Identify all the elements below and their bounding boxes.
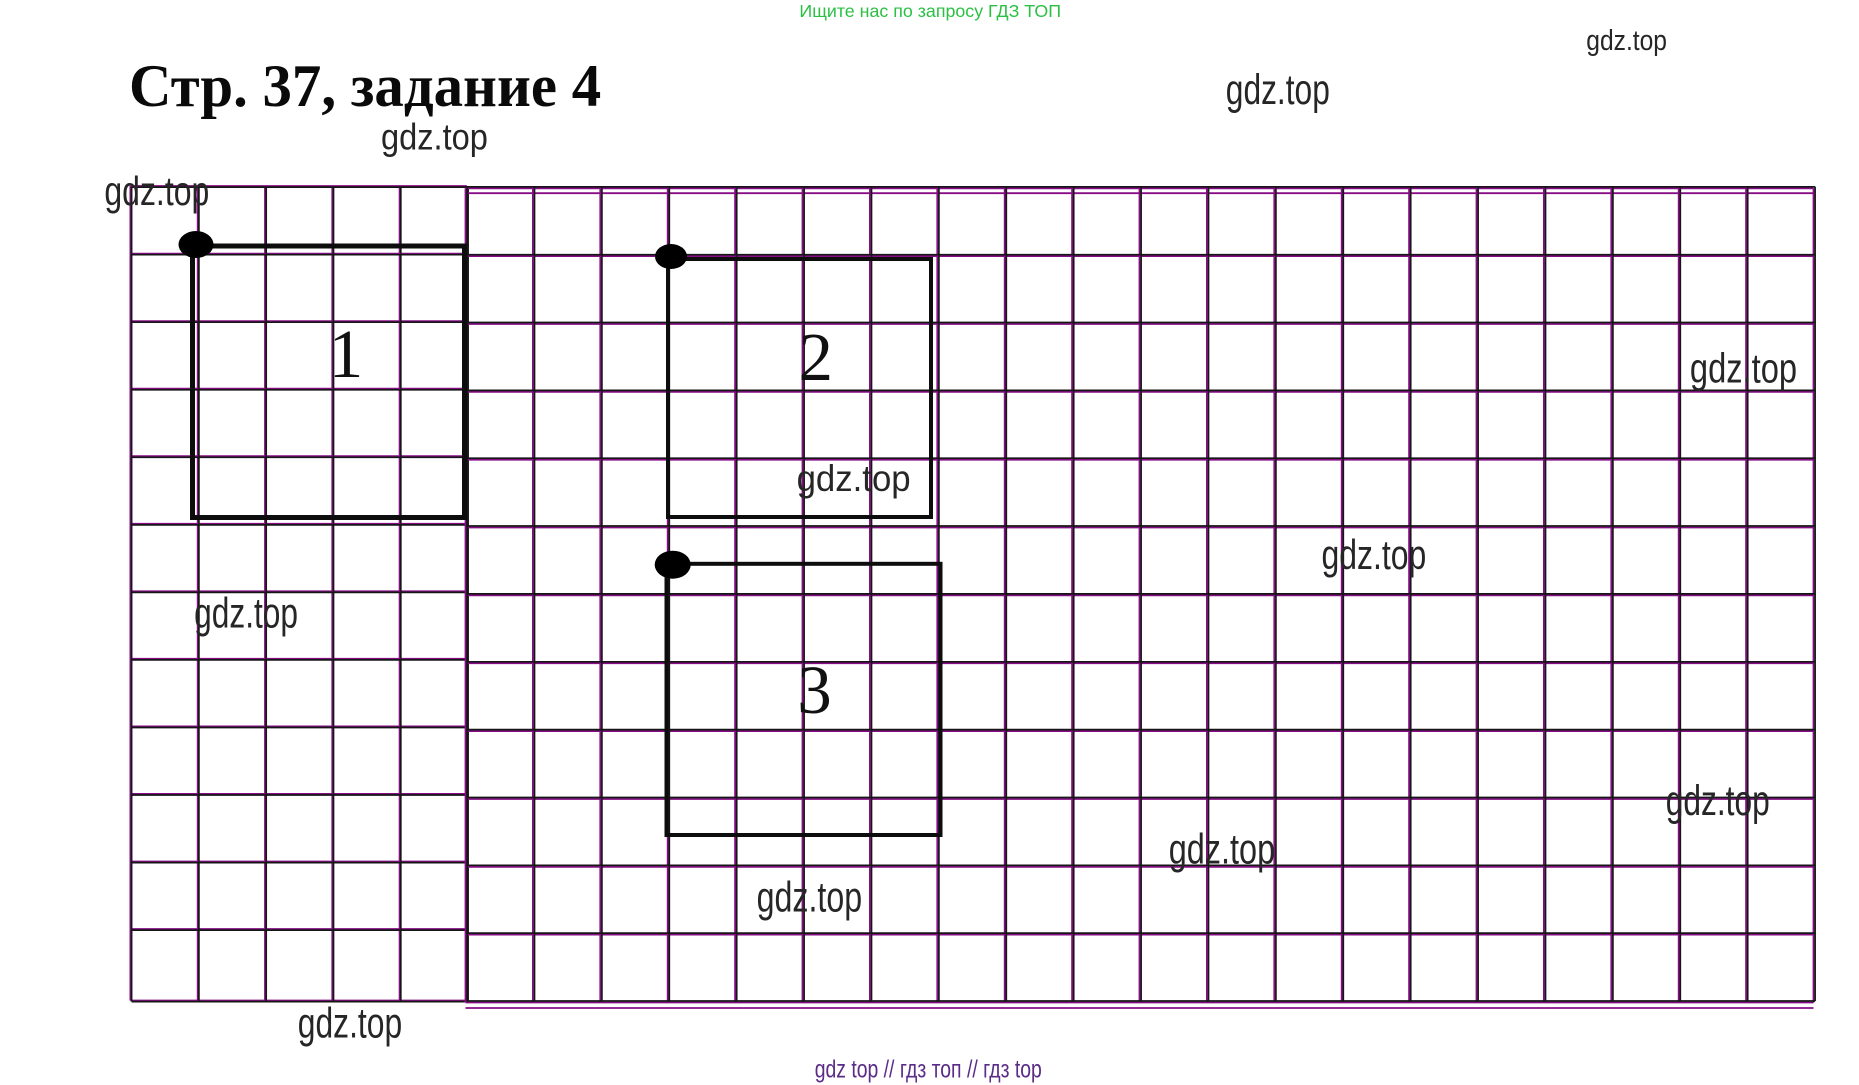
svg-text:2: 2 [798,319,833,395]
svg-text:Ищите нас по запросу ГДЗ ТОП: Ищите нас по запросу ГДЗ ТОП [799,1,1061,21]
svg-text:gdz.top: gdz.top [797,458,911,499]
svg-text:gdz top // гдз топ // гдз top: gdz top // гдз топ // гдз top [815,1055,1042,1083]
svg-text:gdz.top: gdz.top [1169,826,1275,873]
svg-text:gdz.top: gdz.top [1586,24,1667,56]
svg-text:gdz.top: gdz.top [381,117,488,158]
svg-text:gdz.top: gdz.top [1690,344,1797,391]
svg-text:gdz.top: gdz.top [298,1000,402,1048]
svg-text:gdz.top: gdz.top [1226,66,1330,114]
svg-text:gdz.top: gdz.top [1666,777,1770,825]
svg-text:gdz.top: gdz.top [757,874,863,922]
svg-text:Стр. 37, задание 4: Стр. 37, задание 4 [129,52,601,119]
svg-text:gdz.top: gdz.top [194,590,298,638]
svg-text:1: 1 [329,316,364,392]
svg-text:3: 3 [797,652,832,728]
svg-text:gdz.top: gdz.top [104,168,209,214]
svg-text:gdz.top: gdz.top [1322,531,1427,578]
